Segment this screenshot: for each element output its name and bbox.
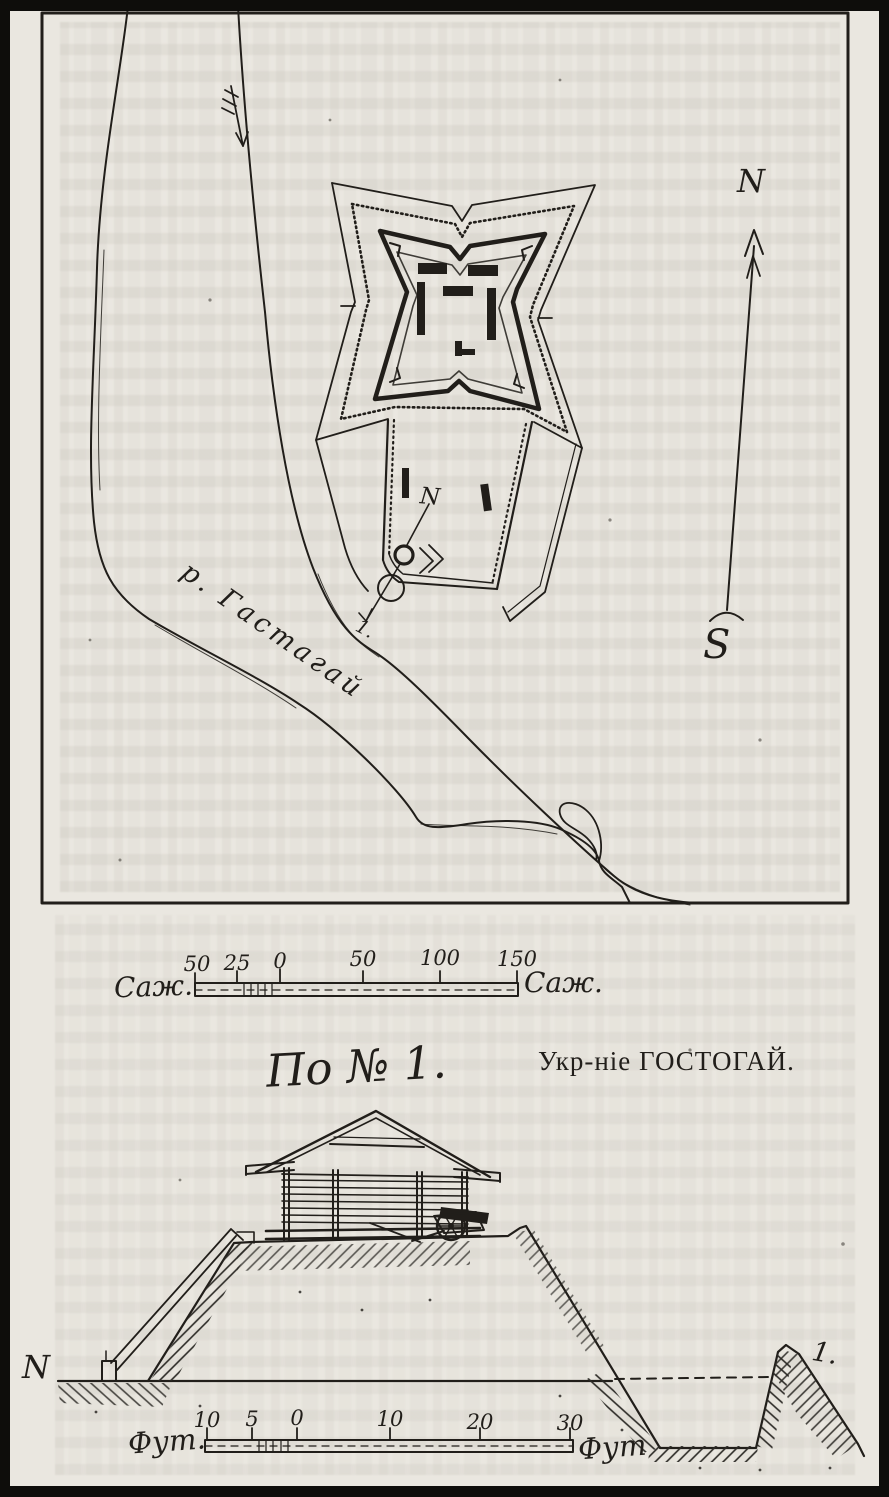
feet-tick-5: 5 — [245, 1407, 258, 1431]
star-fort — [316, 183, 595, 621]
sazhen-tick-25: 25 — [224, 951, 251, 975]
profile-title: По № 1. — [265, 1035, 448, 1097]
feet-tick-20: 20 — [467, 1410, 494, 1434]
scanned-fortification-plate: N S р. Гастагай N 1. Саж. Саж. 50 25 0 5… — [0, 0, 889, 1497]
feet-tick-10l: 10 — [194, 1408, 221, 1432]
figure-caption: Укр-ніе ГОСТОГАЙ. — [538, 1046, 795, 1077]
feet-tick-30: 30 — [557, 1411, 584, 1435]
sazhen-tick-0: 0 — [273, 949, 286, 973]
sazhen-tick-100: 100 — [420, 946, 460, 970]
scan-border-right — [879, 0, 889, 1497]
blockhouse — [237, 1111, 500, 1243]
engraving-artwork — [0, 0, 889, 1497]
sazhen-tick-50r: 50 — [350, 947, 377, 971]
section-line — [359, 504, 429, 621]
sazhen-tick-50l: 50 — [184, 952, 211, 976]
fort-buildings — [417, 263, 498, 356]
scale-bar-feet — [205, 1428, 573, 1452]
ramp-post — [102, 1361, 116, 1381]
feet-tick-0: 0 — [290, 1406, 303, 1430]
profile-drawing — [58, 1111, 864, 1471]
sazhen-tick-150: 150 — [497, 947, 537, 971]
feet-tick-10r: 10 — [377, 1407, 404, 1431]
compass-needle — [710, 230, 763, 621]
map-frame — [42, 13, 848, 903]
scan-border-bottom — [0, 1486, 889, 1497]
scan-border-top — [0, 0, 889, 11]
feet-unit-right: Фут — [577, 1428, 648, 1467]
tail-chevrons — [420, 545, 443, 573]
river-gastagai — [91, 6, 700, 905]
profile-right-marker: 1. — [810, 1336, 841, 1371]
compass-north-label: N — [737, 162, 765, 200]
section-line-start-label: N — [419, 483, 441, 511]
ground-line-dashed — [615, 1377, 770, 1379]
profile-left-marker: N — [22, 1348, 50, 1386]
compass-south-label: S — [703, 622, 730, 668]
fort-parade-line — [393, 252, 526, 393]
compass-south-arc — [710, 613, 743, 621]
fort-well — [395, 546, 413, 564]
scan-border-left — [0, 0, 10, 1497]
tail-buildings — [402, 468, 492, 511]
sazhen-unit-left: Саж. — [113, 969, 193, 1005]
fort-tail — [316, 420, 582, 621]
